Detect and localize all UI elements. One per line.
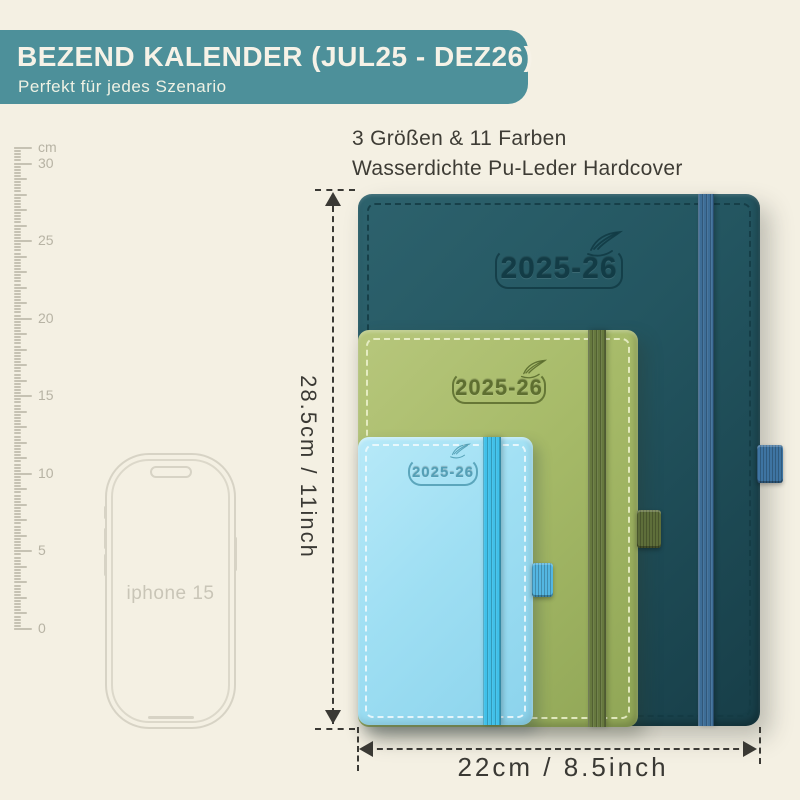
ruler-tick bbox=[14, 327, 21, 329]
ruler-tick bbox=[14, 277, 21, 279]
ruler-tick bbox=[14, 445, 21, 447]
pen-loop bbox=[637, 510, 661, 548]
ruler-tick bbox=[14, 159, 21, 161]
ruler-tick bbox=[14, 299, 21, 301]
ruler-tick bbox=[14, 457, 27, 459]
ruler-tick bbox=[14, 504, 27, 506]
notebook-small: 2025-26 bbox=[358, 437, 533, 725]
ruler-tick bbox=[14, 491, 21, 493]
width-dimension-line bbox=[367, 748, 749, 750]
ruler-tick bbox=[14, 234, 21, 236]
ruler-tick bbox=[14, 401, 21, 403]
ruler-tick bbox=[14, 513, 21, 515]
elastic-band bbox=[588, 330, 606, 727]
ruler-tick bbox=[14, 330, 21, 332]
ruler-tick bbox=[14, 417, 21, 419]
iphone-outline: iphone 15 bbox=[105, 453, 236, 729]
product-image: BEZEND KALENDER (JUL25 - DEZ26) Perfekt … bbox=[0, 0, 800, 800]
ruler-tick bbox=[14, 315, 21, 317]
ruler-tick bbox=[14, 156, 21, 158]
ruler-tick bbox=[14, 218, 21, 220]
ruler-tick bbox=[14, 566, 27, 568]
ruler-tick bbox=[14, 510, 21, 512]
ruler-tick bbox=[14, 557, 21, 559]
ruler-tick bbox=[14, 342, 21, 344]
iphone-speaker-line bbox=[148, 716, 194, 719]
ruler-label: 10 bbox=[38, 465, 54, 481]
ruler-tick bbox=[14, 172, 21, 174]
ruler-label: 25 bbox=[38, 232, 54, 248]
intro-line-sizes: 3 Größen & 11 Farben bbox=[352, 124, 683, 154]
ruler-tick bbox=[14, 355, 21, 357]
ruler-tick bbox=[14, 408, 21, 410]
ruler-tick bbox=[14, 386, 21, 388]
ruler-tick bbox=[14, 253, 21, 255]
ruler-tick bbox=[14, 280, 21, 282]
ruler-tick bbox=[14, 436, 21, 438]
notebook-logo: 2025-26 bbox=[495, 249, 623, 289]
logo-year: 2025-26 bbox=[408, 458, 478, 486]
ruler-tick bbox=[14, 324, 21, 326]
header-banner: BEZEND KALENDER (JUL25 - DEZ26) Perfekt … bbox=[0, 30, 528, 104]
ruler-tick bbox=[14, 175, 21, 177]
ruler-tick bbox=[14, 259, 21, 261]
feather-icon bbox=[448, 443, 473, 458]
iphone-label: iphone 15 bbox=[107, 583, 234, 605]
ruler-major-tick bbox=[14, 147, 32, 149]
ruler-tick bbox=[14, 374, 21, 376]
ruler-tick bbox=[14, 448, 21, 450]
ruler-major-tick bbox=[14, 395, 32, 397]
ruler-tick bbox=[14, 625, 21, 627]
ruler-tick bbox=[14, 470, 21, 472]
ruler-label: 5 bbox=[38, 542, 46, 558]
ruler-tick bbox=[14, 166, 21, 168]
ruler-tick bbox=[14, 246, 21, 248]
ruler-tick bbox=[14, 507, 21, 509]
ruler-tick bbox=[14, 532, 21, 534]
ruler-tick bbox=[14, 597, 27, 599]
ruler-tick bbox=[14, 563, 21, 565]
ruler-label: 30 bbox=[38, 155, 54, 171]
ruler-tick bbox=[14, 358, 21, 360]
ruler-tick bbox=[14, 464, 21, 466]
notebook-logo: 2025-26 bbox=[452, 372, 546, 404]
iphone-action-button bbox=[104, 506, 107, 519]
arrow-up-icon bbox=[325, 192, 341, 206]
ruler-tick bbox=[14, 321, 21, 323]
ruler-tick bbox=[14, 336, 21, 338]
ruler-tick bbox=[14, 529, 21, 531]
ruler-tick bbox=[14, 488, 27, 490]
ruler-tick bbox=[14, 594, 21, 596]
width-dimension-label: 22cm / 8.5inch bbox=[373, 752, 753, 783]
ruler-tick bbox=[14, 389, 21, 391]
ruler-tick bbox=[14, 575, 21, 577]
ruler-tick bbox=[14, 591, 21, 593]
ruler-tick bbox=[14, 308, 21, 310]
ruler-major-tick bbox=[14, 318, 32, 320]
ruler-tick bbox=[14, 541, 21, 543]
ruler-tick bbox=[14, 383, 21, 385]
ruler-tick bbox=[14, 190, 21, 192]
arrow-down-icon bbox=[325, 710, 341, 724]
ruler-label: cm bbox=[38, 139, 57, 155]
ruler-tick bbox=[14, 287, 27, 289]
ruler-tick bbox=[14, 588, 21, 590]
ruler-tick bbox=[14, 476, 21, 478]
ruler-tick bbox=[14, 293, 21, 295]
arrow-left-icon bbox=[359, 741, 373, 757]
ruler-tick bbox=[14, 243, 21, 245]
ruler-tick bbox=[14, 215, 21, 217]
ruler-tick bbox=[14, 414, 21, 416]
ruler-tick bbox=[14, 197, 21, 199]
ruler-tick bbox=[14, 572, 21, 574]
ruler-tick bbox=[14, 256, 27, 258]
ruler-tick bbox=[14, 485, 21, 487]
ruler-tick bbox=[14, 271, 27, 273]
ruler-tick bbox=[14, 333, 27, 335]
intro-line-material: Wasserdichte Pu-Leder Hardcover bbox=[352, 154, 683, 184]
ruler-major-tick bbox=[14, 473, 32, 475]
ruler-tick bbox=[14, 426, 27, 428]
ruler-label: 0 bbox=[38, 620, 46, 636]
ruler-tick bbox=[14, 339, 21, 341]
ruler-tick bbox=[14, 370, 21, 372]
ruler-tick bbox=[14, 522, 21, 524]
ruler-tick bbox=[14, 352, 21, 354]
ruler-tick bbox=[14, 535, 27, 537]
height-dimension-cap-top bbox=[315, 189, 355, 191]
ruler-tick bbox=[14, 553, 21, 555]
ruler-tick bbox=[14, 169, 21, 171]
ruler-tick bbox=[14, 622, 21, 624]
ruler-tick bbox=[14, 547, 21, 549]
pen-loop bbox=[757, 445, 783, 483]
ruler-major-tick bbox=[14, 628, 32, 630]
ruler-major-tick bbox=[14, 163, 32, 165]
ruler-tick bbox=[14, 237, 21, 239]
ruler-tick bbox=[14, 290, 21, 292]
ruler-tick bbox=[14, 367, 21, 369]
ruler-tick bbox=[14, 349, 27, 351]
ruler-tick bbox=[14, 153, 21, 155]
ruler-tick bbox=[14, 482, 21, 484]
ruler-tick bbox=[14, 519, 27, 521]
ruler-tick bbox=[14, 600, 21, 602]
ruler-tick bbox=[14, 612, 27, 614]
ruler-tick bbox=[14, 305, 21, 307]
ruler-tick bbox=[14, 200, 21, 202]
ruler-tick bbox=[14, 274, 21, 276]
ruler-tick bbox=[14, 249, 21, 251]
ruler-tick bbox=[14, 178, 27, 180]
height-dimension-label: 28.5cm / 11inch bbox=[291, 337, 321, 597]
iphone-power-button bbox=[234, 537, 237, 571]
ruler-tick bbox=[14, 538, 21, 540]
logo-year: 2025-26 bbox=[452, 372, 546, 404]
pen-loop bbox=[532, 563, 553, 597]
ruler-tick bbox=[14, 268, 21, 270]
ruler-tick bbox=[14, 398, 21, 400]
ruler-tick bbox=[14, 228, 21, 230]
ruler-label: 20 bbox=[38, 310, 54, 326]
banner-title: BEZEND KALENDER (JUL25 - DEZ26) bbox=[17, 41, 533, 73]
ruler-tick bbox=[14, 439, 21, 441]
iphone-volume-up-button bbox=[104, 528, 107, 549]
ruler-tick bbox=[14, 585, 21, 587]
ruler-tick bbox=[14, 560, 21, 562]
ruler-tick bbox=[14, 361, 21, 363]
ruler-tick bbox=[14, 454, 21, 456]
elastic-band bbox=[698, 194, 714, 726]
ruler-tick bbox=[14, 209, 27, 211]
ruler-tick bbox=[14, 569, 21, 571]
ruler-tick bbox=[14, 221, 21, 223]
ruler-tick bbox=[14, 498, 21, 500]
ruler-tick bbox=[14, 225, 27, 227]
ruler-tick bbox=[14, 265, 21, 267]
ruler-tick bbox=[14, 442, 27, 444]
ruler-tick bbox=[14, 578, 21, 580]
ruler: cm302520151050 bbox=[14, 0, 74, 800]
ruler-tick bbox=[14, 302, 27, 304]
ruler-tick bbox=[14, 364, 27, 366]
ruler-tick bbox=[14, 194, 27, 196]
height-dimension-cap-bottom bbox=[315, 728, 355, 730]
ruler-tick bbox=[14, 619, 21, 621]
ruler-tick bbox=[14, 609, 21, 611]
ruler-tick bbox=[14, 311, 21, 313]
elastic-band bbox=[483, 437, 501, 725]
height-dimension-line bbox=[332, 196, 334, 724]
ruler-tick bbox=[14, 467, 21, 469]
ruler-tick bbox=[14, 423, 21, 425]
ruler-tick bbox=[14, 581, 27, 583]
ruler-tick bbox=[14, 603, 21, 605]
ruler-tick bbox=[14, 203, 21, 205]
ruler-tick bbox=[14, 296, 21, 298]
ruler-major-tick bbox=[14, 550, 32, 552]
ruler-tick bbox=[14, 411, 27, 413]
intro-text: 3 Größen & 11 Farben Wasserdichte Pu-Led… bbox=[352, 124, 683, 184]
ruler-tick bbox=[14, 495, 21, 497]
ruler-tick bbox=[14, 460, 21, 462]
ruler-tick bbox=[14, 451, 21, 453]
ruler-tick bbox=[14, 184, 21, 186]
ruler-tick bbox=[14, 501, 21, 503]
ruler-tick bbox=[14, 429, 21, 431]
iphone-volume-down-button bbox=[104, 554, 107, 576]
ruler-tick bbox=[14, 526, 21, 528]
ruler-tick bbox=[14, 432, 21, 434]
ruler-tick bbox=[14, 181, 21, 183]
ruler-tick bbox=[14, 392, 21, 394]
width-dimension-cap-right bbox=[759, 727, 761, 764]
ruler-tick bbox=[14, 206, 21, 208]
dynamic-island bbox=[150, 466, 192, 478]
ruler-tick bbox=[14, 231, 21, 233]
ruler-major-tick bbox=[14, 240, 32, 242]
ruler-tick bbox=[14, 262, 21, 264]
ruler-tick bbox=[14, 479, 21, 481]
ruler-tick bbox=[14, 544, 21, 546]
ruler-label: 15 bbox=[38, 387, 54, 403]
ruler-tick bbox=[14, 212, 21, 214]
ruler-tick bbox=[14, 284, 21, 286]
notebook-logo: 2025-26 bbox=[408, 458, 478, 486]
ruler-tick bbox=[14, 346, 21, 348]
ruler-tick bbox=[14, 150, 21, 152]
ruler-tick bbox=[14, 187, 21, 189]
ruler-tick bbox=[14, 516, 21, 518]
ruler-tick bbox=[14, 405, 21, 407]
ruler-tick bbox=[14, 377, 21, 379]
ruler-tick bbox=[14, 616, 21, 618]
ruler-tick bbox=[14, 380, 27, 382]
ruler-tick bbox=[14, 606, 21, 608]
ruler-tick bbox=[14, 420, 21, 422]
logo-year: 2025-26 bbox=[495, 249, 623, 289]
